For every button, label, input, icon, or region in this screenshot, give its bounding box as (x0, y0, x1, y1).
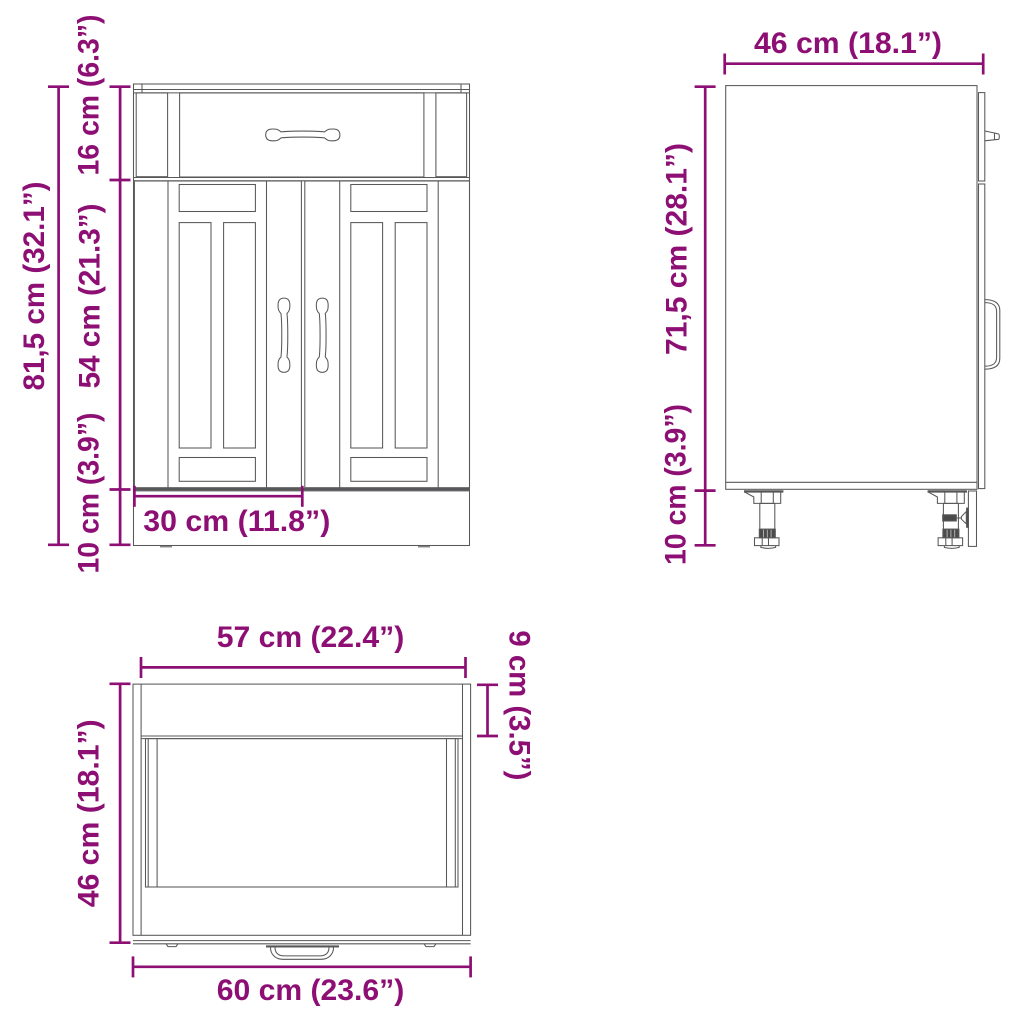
svg-text:10 cm (3.9”): 10 cm (3.9”) (72, 413, 105, 574)
svg-text:57 cm (22.4”): 57 cm (22.4”) (217, 621, 405, 654)
svg-text:10 cm (3.9”): 10 cm (3.9”) (660, 404, 693, 565)
svg-text:60 cm (23.6”): 60 cm (23.6”) (217, 974, 405, 1007)
svg-text:71,5 cm (28.1”): 71,5 cm (28.1”) (660, 143, 693, 355)
svg-text:30 cm (11.8”): 30 cm (11.8”) (143, 505, 330, 538)
svg-text:46 cm (18.1”): 46 cm (18.1”) (72, 719, 105, 907)
svg-text:54 cm (21.3”): 54 cm (21.3”) (74, 204, 107, 389)
svg-text:46 cm (18.1”): 46 cm (18.1”) (754, 27, 942, 60)
svg-text:81,5 cm (32.1”): 81,5 cm (32.1”) (18, 182, 51, 391)
svg-text:9 cm (3.5”): 9 cm (3.5”) (502, 630, 535, 780)
svg-text:16 cm (6.3”): 16 cm (6.3”) (72, 15, 105, 176)
